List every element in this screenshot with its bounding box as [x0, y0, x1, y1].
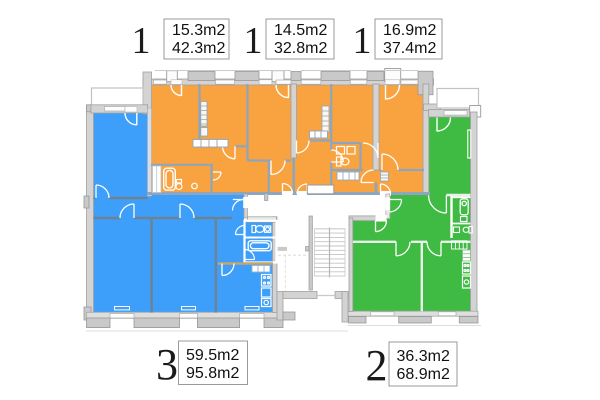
svg-text:95.8m2: 95.8m2 — [186, 365, 239, 382]
svg-text:16.9m2: 16.9m2 — [383, 22, 436, 39]
svg-text:42.3m2: 42.3m2 — [172, 40, 225, 57]
svg-text:32.8m2: 32.8m2 — [274, 40, 327, 57]
svg-text:1: 1 — [353, 20, 372, 62]
svg-text:1: 1 — [244, 20, 263, 62]
svg-text:2: 2 — [366, 341, 388, 390]
svg-text:37.4m2: 37.4m2 — [383, 40, 436, 57]
svg-text:59.5m2: 59.5m2 — [186, 347, 239, 364]
svg-text:1: 1 — [132, 20, 151, 62]
svg-text:14.5m2: 14.5m2 — [274, 22, 327, 39]
svg-text:15.3m2: 15.3m2 — [172, 22, 225, 39]
svg-text:68.9m2: 68.9m2 — [397, 366, 450, 383]
svg-text:3: 3 — [156, 340, 178, 389]
svg-text:36.3m2: 36.3m2 — [397, 348, 450, 365]
